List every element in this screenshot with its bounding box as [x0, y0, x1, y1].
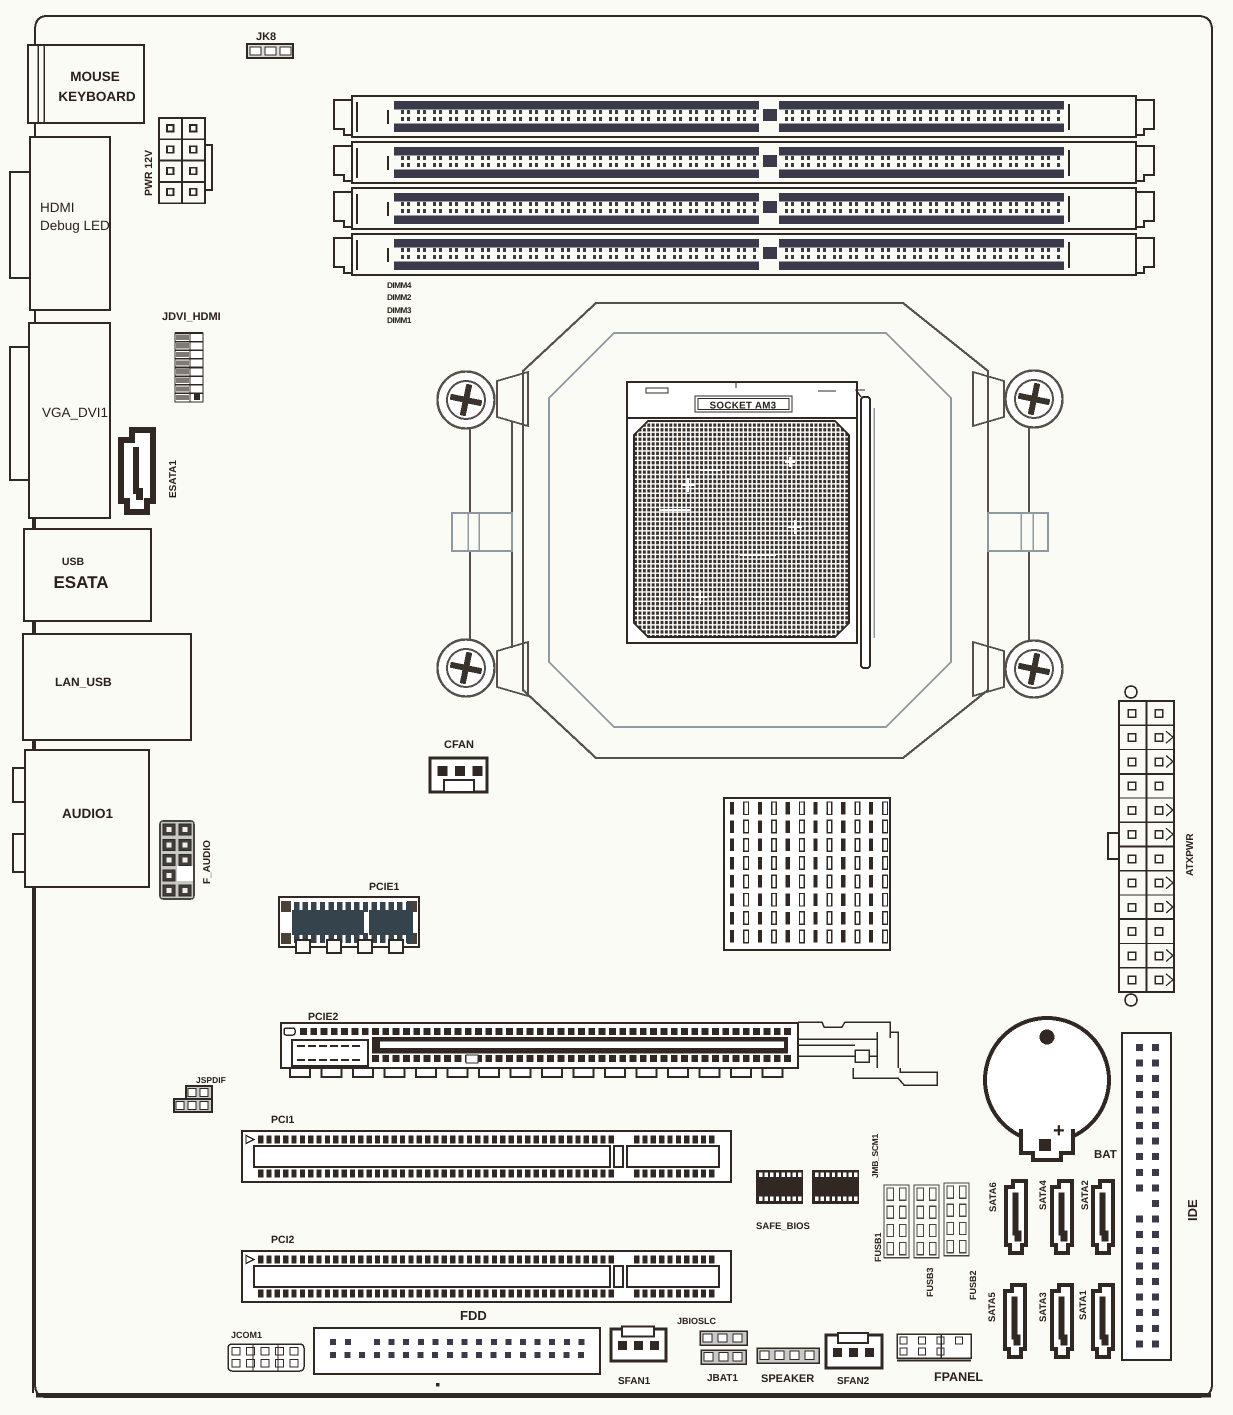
svg-text:AUDIO1: AUDIO1	[62, 806, 113, 821]
svg-text:KEYBOARD: KEYBOARD	[58, 89, 136, 104]
svg-text:VGA_DVI1: VGA_DVI1	[42, 405, 108, 420]
svg-text:PWR 12V: PWR 12V	[143, 150, 155, 196]
svg-text:PCIE1: PCIE1	[369, 881, 400, 893]
svg-text:PCIE2: PCIE2	[308, 1011, 339, 1023]
svg-text:SATA2: SATA2	[1080, 1180, 1091, 1210]
svg-text:ATXPWR: ATXPWR	[1185, 833, 1196, 876]
svg-text:JDVI_HDMI: JDVI_HDMI	[162, 311, 221, 323]
svg-text:SATA1: SATA1	[1078, 1290, 1089, 1320]
svg-text:SATA3: SATA3	[1038, 1292, 1049, 1322]
svg-text:SOCKET AM3: SOCKET AM3	[710, 401, 777, 412]
svg-text:SFAN2: SFAN2	[837, 1376, 870, 1387]
svg-text:FUSB2: FUSB2	[968, 1270, 978, 1300]
svg-text:DIMM3: DIMM3	[387, 306, 412, 315]
svg-text:BAT: BAT	[1094, 1149, 1117, 1161]
svg-text:IDE: IDE	[1185, 1199, 1200, 1221]
svg-text:PCI1: PCI1	[271, 1114, 295, 1126]
svg-text:DIMM4: DIMM4	[387, 281, 412, 290]
svg-text:SATA6: SATA6	[988, 1182, 999, 1212]
svg-text:+: +	[1053, 1120, 1065, 1142]
svg-text:FDD: FDD	[460, 1308, 487, 1323]
svg-text:HDMI: HDMI	[40, 200, 75, 215]
svg-text:FPANEL: FPANEL	[934, 1370, 983, 1384]
svg-text:SFAN1: SFAN1	[618, 1376, 651, 1387]
svg-text:JBAT1: JBAT1	[707, 1373, 738, 1384]
svg-text:LAN_USB: LAN_USB	[55, 675, 112, 689]
svg-text:DIMM2: DIMM2	[387, 293, 412, 302]
svg-text:PCI2: PCI2	[271, 1234, 295, 1246]
svg-text:ESATA1: ESATA1	[168, 460, 179, 498]
svg-text:FUSB3: FUSB3	[925, 1267, 935, 1297]
svg-text:DIMM1: DIMM1	[387, 316, 412, 325]
svg-text:SATA5: SATA5	[987, 1292, 998, 1322]
svg-text:JCOM1: JCOM1	[231, 1330, 262, 1340]
svg-text:F_AUDIO: F_AUDIO	[202, 840, 213, 884]
svg-text:Debug LED: Debug LED	[40, 218, 110, 233]
svg-text:ESATA: ESATA	[53, 573, 108, 592]
svg-text:MOUSE: MOUSE	[70, 69, 120, 84]
svg-text:SATA4: SATA4	[1038, 1180, 1049, 1210]
svg-text:JK8: JK8	[256, 31, 276, 43]
svg-text:SPEAKER: SPEAKER	[761, 1373, 814, 1385]
svg-text:CFAN: CFAN	[444, 739, 474, 751]
svg-text:JMB_SCM1: JMB_SCM1	[870, 1134, 880, 1178]
svg-text:JBIOSLC: JBIOSLC	[677, 1316, 717, 1326]
svg-text:USB: USB	[62, 556, 85, 568]
svg-text:JSPDIF: JSPDIF	[196, 1075, 226, 1085]
svg-text:SAFE_BIOS: SAFE_BIOS	[756, 1221, 810, 1232]
svg-text:FUSB1: FUSB1	[873, 1232, 883, 1262]
